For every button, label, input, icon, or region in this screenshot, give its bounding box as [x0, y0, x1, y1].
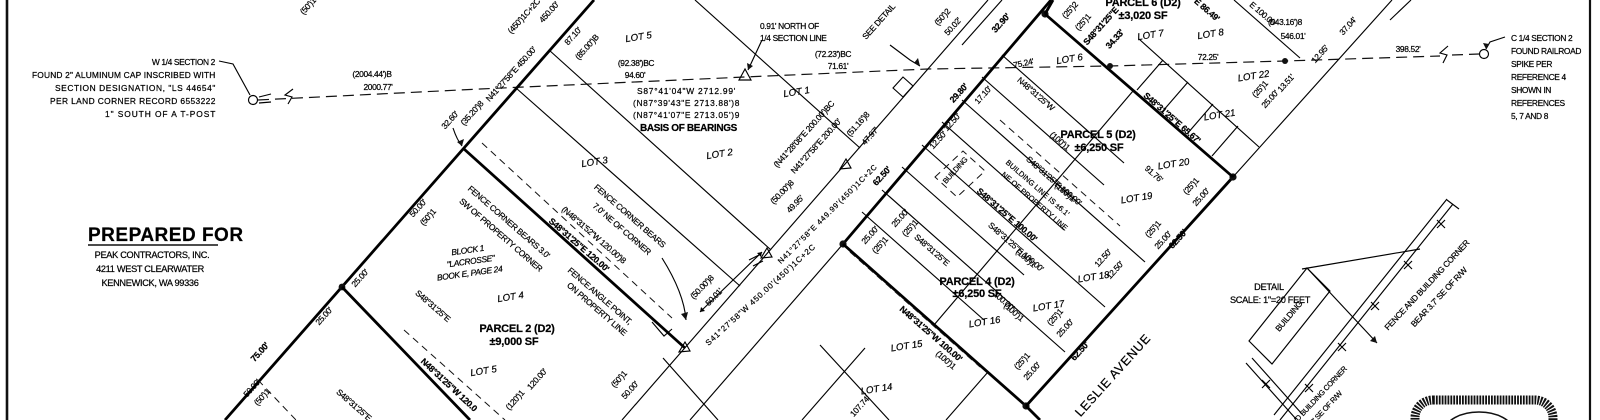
svg-text:±3,020 SF: ±3,020 SF: [1119, 10, 1168, 22]
svg-text:PREPARED FOR: PREPARED FOR: [88, 225, 244, 246]
svg-text:546.01': 546.01': [1281, 31, 1307, 41]
svg-text:0.91' NORTH OF: 0.91' NORTH OF: [760, 21, 819, 31]
svg-text:FOUND 2" ALUMINUM CAP INSCRIBE: FOUND 2" ALUMINUM CAP INSCRIBED WITH: [32, 70, 215, 80]
svg-text:(N87°41'07"E 2713.05')9: (N87°41'07"E 2713.05')9: [633, 110, 740, 120]
svg-text:72.25': 72.25': [1198, 52, 1219, 62]
svg-text:71.61': 71.61': [828, 61, 849, 71]
svg-text:SECTION DESIGNATION, "LS 44654: SECTION DESIGNATION, "LS 44654": [55, 83, 215, 93]
svg-text:(92.38')BC: (92.38')BC: [618, 58, 655, 68]
svg-text:PEAK CONTRACTORS, INC.: PEAK CONTRACTORS, INC.: [95, 250, 210, 260]
svg-text:PARCEL 2 (D2): PARCEL 2 (D2): [479, 323, 555, 335]
svg-text:C 1/4 SECTION 2: C 1/4 SECTION 2: [1511, 33, 1573, 43]
svg-text:W 1/4 SECTION 2: W 1/4 SECTION 2: [152, 57, 216, 67]
svg-text:REFERENCES: REFERENCES: [1511, 98, 1566, 108]
svg-text:SPIKE PER: SPIKE PER: [1511, 59, 1552, 69]
svg-text:DETAIL: DETAIL: [1254, 282, 1284, 292]
svg-text:SHOWN IN: SHOWN IN: [1511, 85, 1551, 95]
svg-text:1/4 SECTION LINE: 1/4 SECTION LINE: [760, 33, 827, 43]
svg-text:94.60': 94.60': [625, 70, 646, 80]
svg-text:PARCEL 6 (D2): PARCEL 6 (D2): [1105, 0, 1181, 9]
svg-text:KENNEWICK, WA 99336: KENNEWICK, WA 99336: [101, 278, 198, 288]
svg-text:FOUND RAILROAD: FOUND RAILROAD: [1511, 46, 1581, 56]
svg-text:5, 7 AND 8: 5, 7 AND 8: [1511, 111, 1549, 121]
svg-text:(N87°39'43"E 2713.88')8: (N87°39'43"E 2713.88')8: [633, 98, 740, 108]
svg-text:±9,000 SF: ±9,000 SF: [490, 336, 539, 348]
svg-text:4211 WEST CLEARWATER: 4211 WEST CLEARWATER: [96, 264, 205, 274]
svg-text:PARCEL 5 (D2): PARCEL 5 (D2): [1060, 129, 1136, 141]
svg-text:2000.77': 2000.77': [363, 82, 393, 92]
svg-text:PARCEL 4 (D2): PARCEL 4 (D2): [939, 276, 1015, 288]
svg-text:BASIS OF BEARINGS: BASIS OF BEARINGS: [640, 123, 738, 134]
svg-text:(72.23')BC: (72.23')BC: [815, 49, 852, 59]
svg-text:REFERENCE 4: REFERENCE 4: [1511, 72, 1566, 82]
svg-text:1" SOUTH OF A T-POST: 1" SOUTH OF A T-POST: [105, 109, 215, 119]
svg-text:±6,250 SF: ±6,250 SF: [1075, 142, 1124, 154]
svg-text:398.52': 398.52': [1396, 44, 1422, 54]
svg-text:PER LAND CORNER RECORD 6553222: PER LAND CORNER RECORD 6553222: [50, 96, 216, 106]
svg-text:(2004.44')B: (2004.44')B: [352, 69, 392, 79]
svg-text:S87°41'04"W 2712.99': S87°41'04"W 2712.99': [637, 86, 736, 96]
